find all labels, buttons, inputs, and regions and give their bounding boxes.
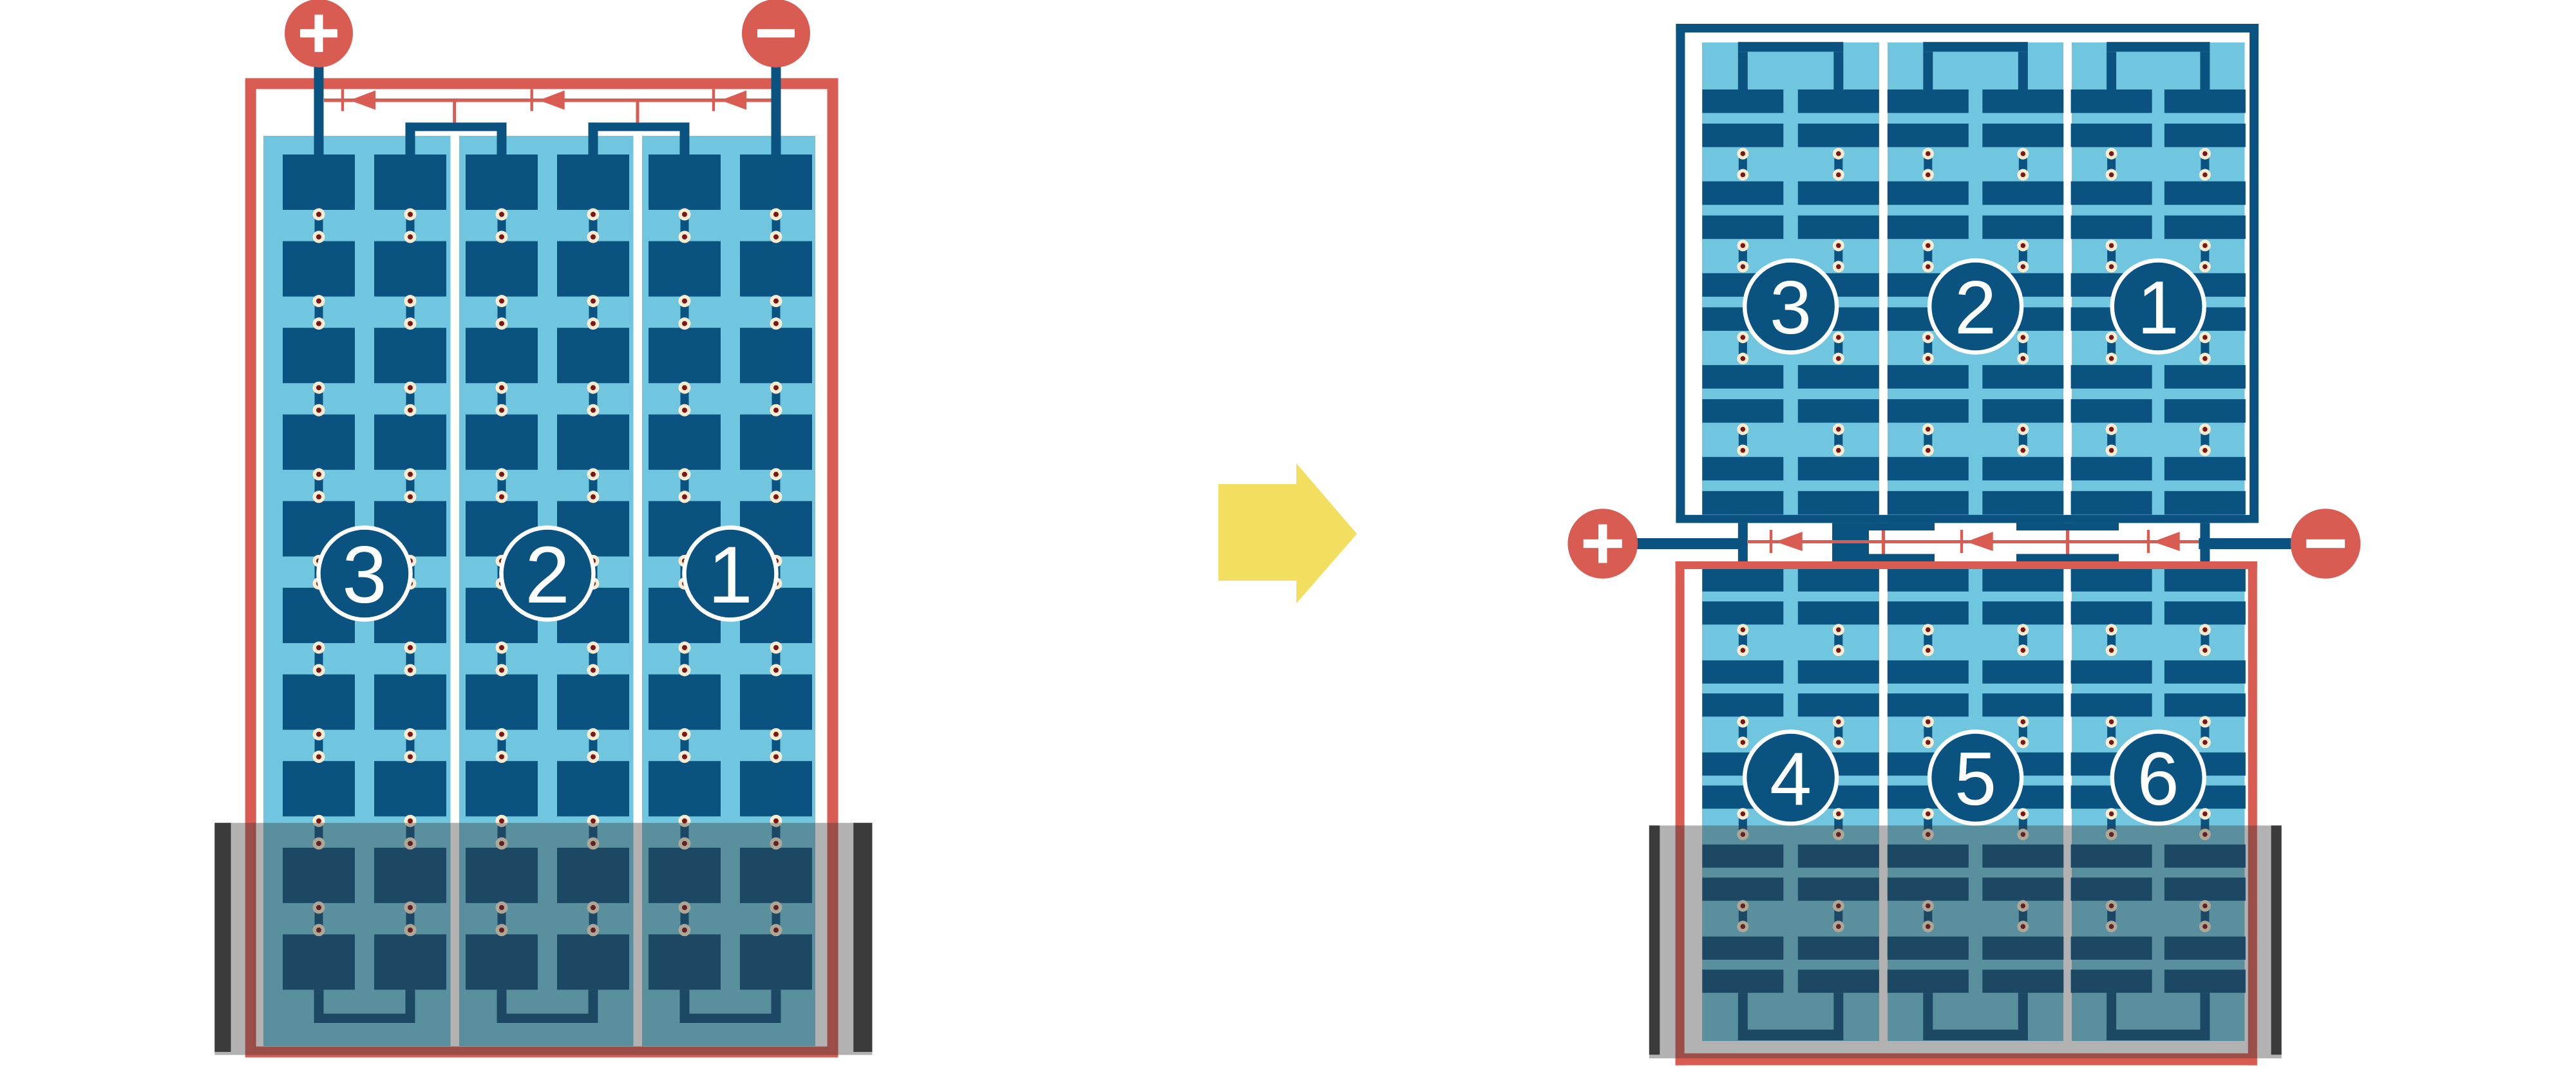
svg-text:3: 3	[342, 530, 387, 620]
svg-text:5: 5	[1955, 736, 1996, 821]
svg-text:3: 3	[1770, 265, 1812, 350]
svg-text:2: 2	[1955, 265, 1996, 350]
svg-text:1: 1	[708, 530, 753, 620]
svg-text:4: 4	[1770, 736, 1812, 821]
svg-text:1: 1	[2137, 265, 2179, 350]
svg-text:2: 2	[525, 530, 570, 620]
svg-text:6: 6	[2137, 736, 2179, 821]
